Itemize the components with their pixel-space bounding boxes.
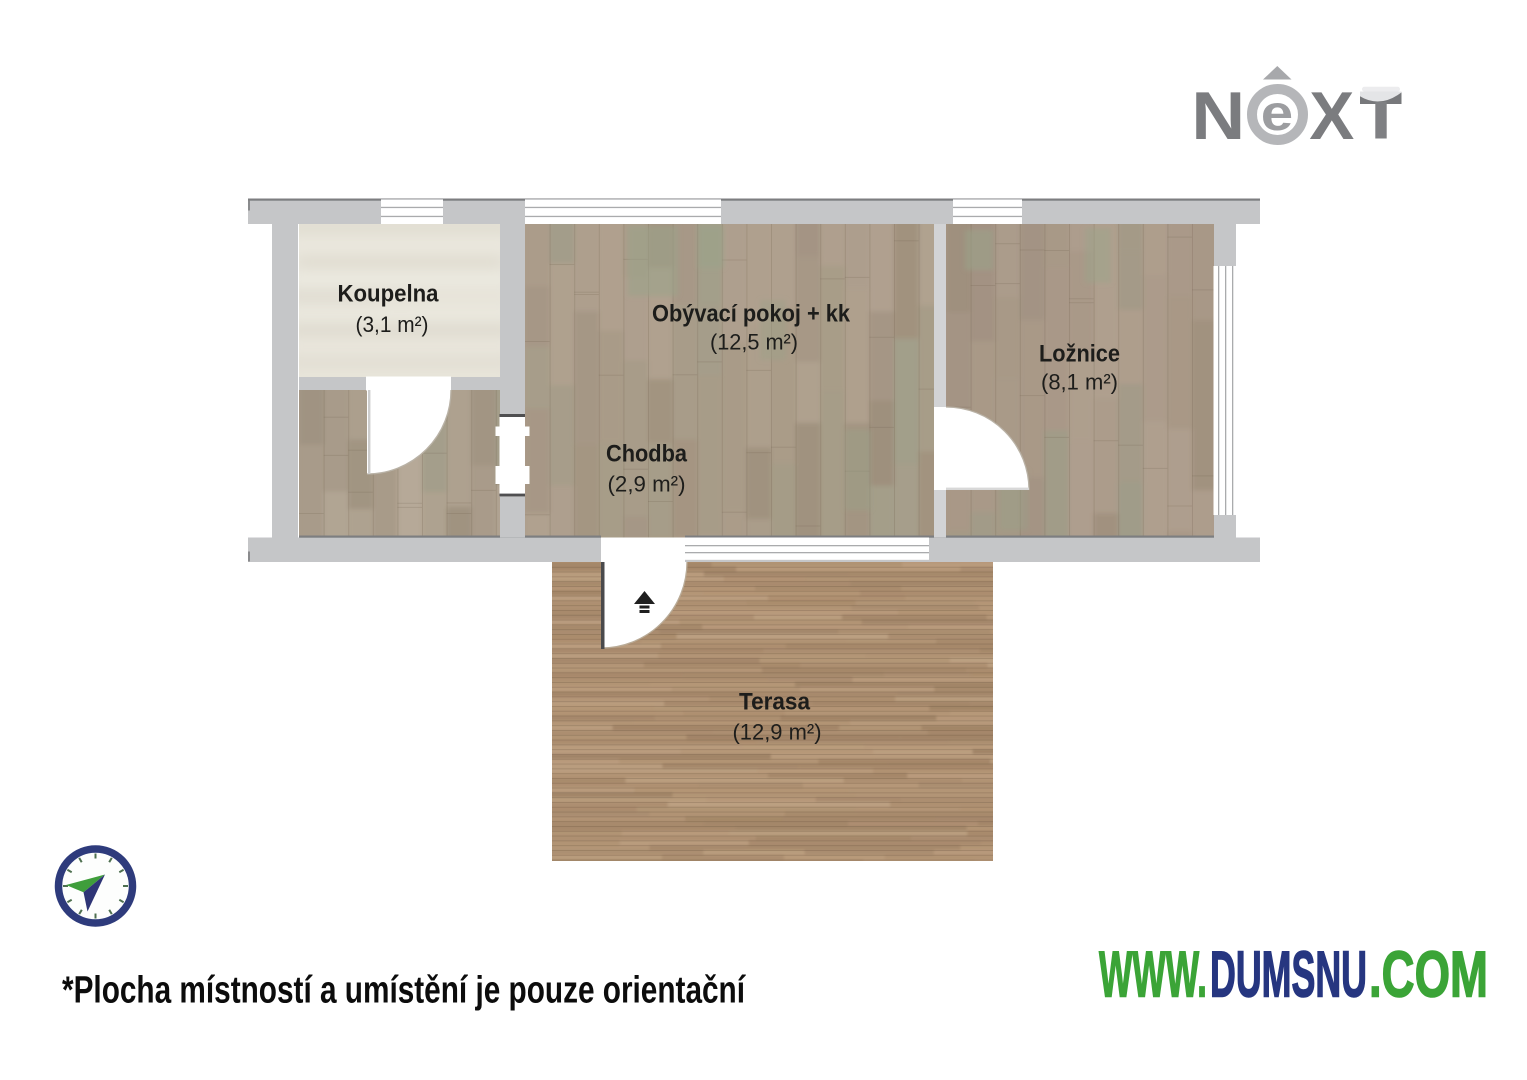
svg-text:X: X [1309,79,1354,154]
svg-text:e: e [1261,85,1293,141]
svg-text:Obývací pokoj + kk: Obývací pokoj + kk [652,300,851,327]
svg-text:Ložnice: Ložnice [1039,340,1120,367]
svg-text:Chodba: Chodba [606,440,688,467]
svg-text:(12,9 m²): (12,9 m²) [733,720,822,745]
svg-text:(12,5 m²): (12,5 m²) [710,330,798,355]
svg-text:(8,1 m²): (8,1 m²) [1041,370,1118,395]
svg-text:DUMSNU: DUMSNU [1210,939,1367,1011]
svg-text:*Plocha místností a umístění j: *Plocha místností a umístění je pouze or… [62,970,746,1012]
svg-text:(3,1 m²): (3,1 m²) [356,312,429,337]
svg-text:WWW.: WWW. [1099,939,1207,1011]
svg-text:(2,9 m²): (2,9 m²) [608,472,686,497]
svg-text:Koupelna: Koupelna [338,281,440,308]
svg-text:.COM: .COM [1369,939,1488,1011]
svg-text:N: N [1191,79,1245,154]
svg-text:Terasa: Terasa [739,689,811,716]
